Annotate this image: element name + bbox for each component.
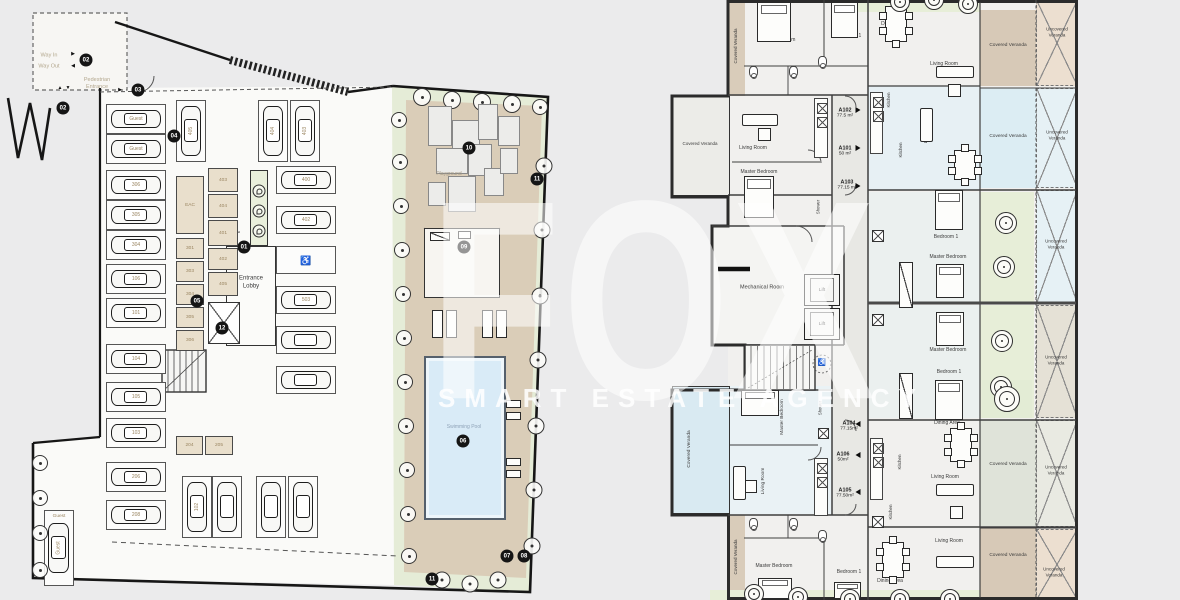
table — [954, 150, 976, 180]
tub — [744, 584, 764, 600]
tub — [991, 330, 1013, 352]
tri — [856, 183, 861, 189]
xb — [818, 428, 829, 439]
bed — [741, 390, 779, 416]
marker: 09 — [458, 241, 471, 254]
tub — [994, 386, 1020, 412]
sofa — [920, 108, 933, 142]
marker: 05 — [191, 295, 204, 308]
sq — [899, 262, 913, 308]
room-label: Master Bedroom — [741, 169, 778, 175]
floor-plan-canvas: Way InWay Out▶◀▲▼Pedestrian Entrance▶Ent… — [0, 0, 1180, 600]
wc — [749, 518, 758, 530]
room-label: Master Bedroom — [780, 399, 786, 434]
tub — [890, 589, 910, 600]
bed — [936, 264, 964, 298]
wc — [818, 530, 827, 542]
tub — [924, 0, 944, 10]
sofa — [936, 556, 974, 568]
room-label: Kitchen — [897, 454, 903, 469]
apartment-label-a101: A10150 m² — [839, 146, 852, 157]
tri — [856, 452, 861, 458]
lift: Lift — [804, 308, 840, 340]
bed — [936, 312, 964, 346]
marker: 04 — [168, 130, 181, 143]
room-label: Uncovered Veranda — [1046, 129, 1068, 140]
room-label: Shower — [815, 200, 820, 214]
tub — [958, 0, 978, 14]
tri — [856, 107, 861, 113]
wc — [789, 66, 798, 78]
tub — [788, 587, 808, 600]
sq — [948, 84, 961, 97]
room-label: Master Bedroom — [930, 347, 967, 353]
marker: 11 — [531, 173, 544, 186]
sofa — [742, 114, 778, 126]
room-label: Kitchen — [898, 142, 904, 157]
tub — [993, 256, 1015, 278]
sq — [950, 506, 963, 519]
room-label: Uncovered Veranda — [1045, 464, 1067, 475]
tub — [995, 212, 1017, 234]
table — [882, 542, 904, 578]
sofa — [936, 66, 974, 78]
room-label: Uncovered Veranda — [1046, 26, 1068, 37]
xb — [872, 516, 884, 528]
wc — [789, 518, 798, 530]
apartment-label-a103: A10377.15 m² — [838, 180, 857, 191]
room-label: Covered Veranda — [687, 430, 693, 467]
table — [950, 428, 972, 462]
counter — [814, 458, 828, 516]
marker: 07 — [501, 550, 514, 563]
sq — [758, 128, 771, 141]
tri — [856, 145, 861, 151]
room-label: Kitchen — [888, 504, 894, 519]
marker: 06 — [457, 435, 470, 448]
counter — [814, 98, 828, 158]
apartment-floor-plan: Master BedroomBedroom 1Dining AreaLiving… — [0, 0, 1180, 600]
room-label: Mechanical Room — [740, 285, 784, 292]
accessible-icon: ♿ — [818, 360, 827, 369]
room-label: Bedroom 1 — [934, 234, 958, 240]
room-label: Covered Veranda — [733, 28, 739, 63]
tri — [856, 489, 861, 495]
xb — [872, 230, 884, 242]
bed — [935, 190, 963, 230]
marker: 08 — [518, 550, 531, 563]
marker: 02 — [80, 54, 93, 67]
tub — [940, 589, 960, 600]
wc — [818, 56, 827, 68]
bed — [831, 2, 858, 38]
marker: 01 — [238, 241, 251, 254]
room-label: Living Room — [739, 145, 767, 151]
bed — [757, 2, 791, 42]
counter — [870, 92, 883, 154]
room-label: Covered Veranda — [989, 462, 1026, 468]
marker: 02 — [57, 102, 70, 115]
marker: 03 — [132, 84, 145, 97]
marker: 10 — [463, 142, 476, 155]
room-label: Living Room — [931, 474, 959, 480]
sofa — [733, 466, 746, 500]
room-label: Shower — [817, 401, 822, 415]
right-plan-items: Master BedroomBedroom 1Dining AreaLiving… — [0, 0, 1180, 600]
room-label: Covered Veranda — [733, 539, 739, 574]
room-label: Living Room — [761, 468, 767, 495]
bed — [744, 176, 774, 218]
apartment-label-a102: A10277.5 m² — [837, 108, 853, 119]
bed — [935, 380, 963, 420]
room-label: Covered Veranda — [989, 43, 1026, 49]
room-label: Covered Veranda — [682, 141, 717, 147]
wc — [749, 66, 758, 78]
sofa — [936, 484, 974, 496]
room-label: Master Bedroom — [756, 563, 793, 569]
room-label: Covered Veranda — [989, 553, 1026, 559]
room-label: Bedroom 1 — [837, 569, 861, 575]
tri — [856, 421, 861, 427]
marker: 11 — [426, 573, 439, 586]
room-label: Uncovered Veranda — [1045, 354, 1067, 365]
apartment-label-a105: A10577.50m² — [836, 488, 854, 499]
sq — [899, 373, 913, 419]
room-label: Bedroom 1 — [937, 369, 961, 375]
room-label: Kitchen — [886, 92, 892, 107]
room-label: Living Room — [935, 538, 963, 544]
room-label: Master Bedroom — [930, 254, 967, 260]
room-label: Uncovered Veranda — [1043, 566, 1065, 577]
counter — [870, 438, 883, 500]
xb — [872, 314, 884, 326]
room-label: Uncovered Veranda — [1045, 238, 1067, 249]
room-label: Covered Veranda — [989, 134, 1026, 140]
marker: 12 — [216, 322, 229, 335]
apartment-label-a106: A10650m² — [837, 452, 850, 463]
lift: Lift — [804, 274, 840, 306]
